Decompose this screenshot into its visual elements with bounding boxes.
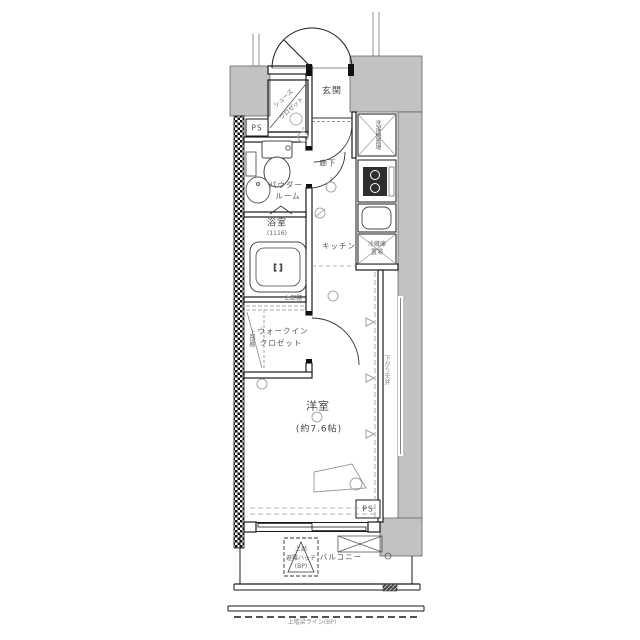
powder-room-label-2: ルーム: [275, 192, 300, 200]
hatch-top-label: 上部: [295, 547, 307, 553]
washer-space-label: 洗濯機置場: [374, 120, 380, 150]
lowered-ceiling-label: 下がり天井: [383, 355, 389, 385]
walkin-closet-label-2: クロゼット: [260, 339, 303, 347]
bathroom-size-label: (1116): [267, 231, 287, 237]
ground-lines: [228, 606, 424, 617]
entrance-label: 玄関: [322, 88, 342, 97]
floorplan-canvas: [ ]: [0, 0, 640, 640]
kitchen-sink-icon: [358, 204, 396, 232]
fridge-label-1: 冷蔵庫: [368, 242, 386, 248]
beam-line-note: 上階梁ライン(BP): [288, 620, 336, 626]
shelf-side-label: 上部棚: [248, 329, 254, 347]
hatch-name-label: 避難ハッチ: [286, 556, 316, 562]
entrance-door-swing: [272, 28, 352, 68]
ps-top-label: PS: [251, 124, 262, 132]
walkin-closet-label-1: ウォークイン: [258, 327, 309, 335]
hatch-sub-label: (BP): [295, 564, 307, 570]
desk-icon: [314, 464, 366, 492]
fridge-label-2: 置場: [371, 250, 383, 256]
stove-icon: [358, 160, 396, 202]
bathroom-label: 浴室: [267, 220, 287, 229]
hallway-label: 廊下: [320, 159, 337, 167]
western-room-label: 洋室: [306, 401, 330, 412]
powder-room-label-1: パウダー: [269, 181, 303, 189]
floorplan-drawing: [ ]: [0, 0, 640, 640]
ps-bottom-label: PS: [362, 505, 373, 513]
western-room-size-label: (約7.6帖): [296, 426, 342, 435]
balcony-drain-hatch: [383, 584, 397, 591]
entrance-step-line: [312, 118, 352, 122]
shelf-top-label: 上部棚: [284, 296, 302, 302]
vent-triangle-icons: [366, 318, 374, 438]
kitchen-label: キッチン: [322, 242, 356, 250]
bathtub-icon: [ ]: [250, 242, 306, 292]
sliding-window: [256, 523, 368, 532]
svg-text:[ ]: [ ]: [274, 263, 283, 272]
balcony-label: バルコニー: [320, 553, 362, 561]
